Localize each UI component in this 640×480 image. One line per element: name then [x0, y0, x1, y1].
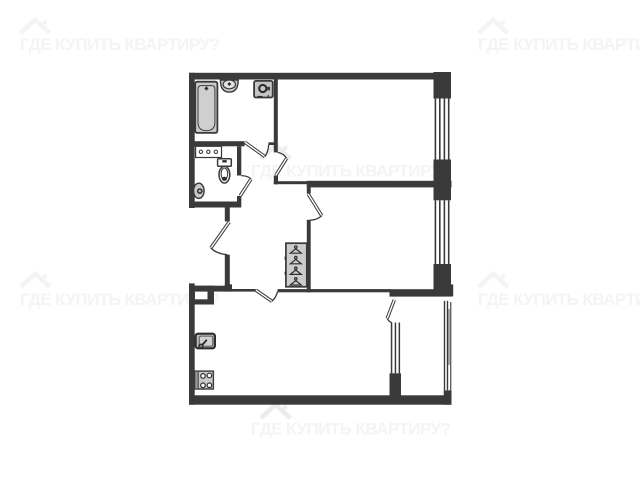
svg-text:ГДЕ КУПИТЬ КВАРТИРУ?: ГДЕ КУПИТЬ КВАРТИРУ? — [251, 420, 451, 439]
svg-text:ГДЕ КУПИТЬ КВАРТИРУ?: ГДЕ КУПИТЬ КВАРТИРУ? — [20, 35, 220, 54]
svg-text:ГДЕ КУПИТЬ КВАРТИРУ?: ГДЕ КУПИТЬ КВАРТИРУ? — [478, 35, 640, 54]
svg-text:ГДЕ КУПИТЬ КВАРТИРУ?: ГДЕ КУПИТЬ КВАРТИРУ? — [478, 290, 640, 309]
